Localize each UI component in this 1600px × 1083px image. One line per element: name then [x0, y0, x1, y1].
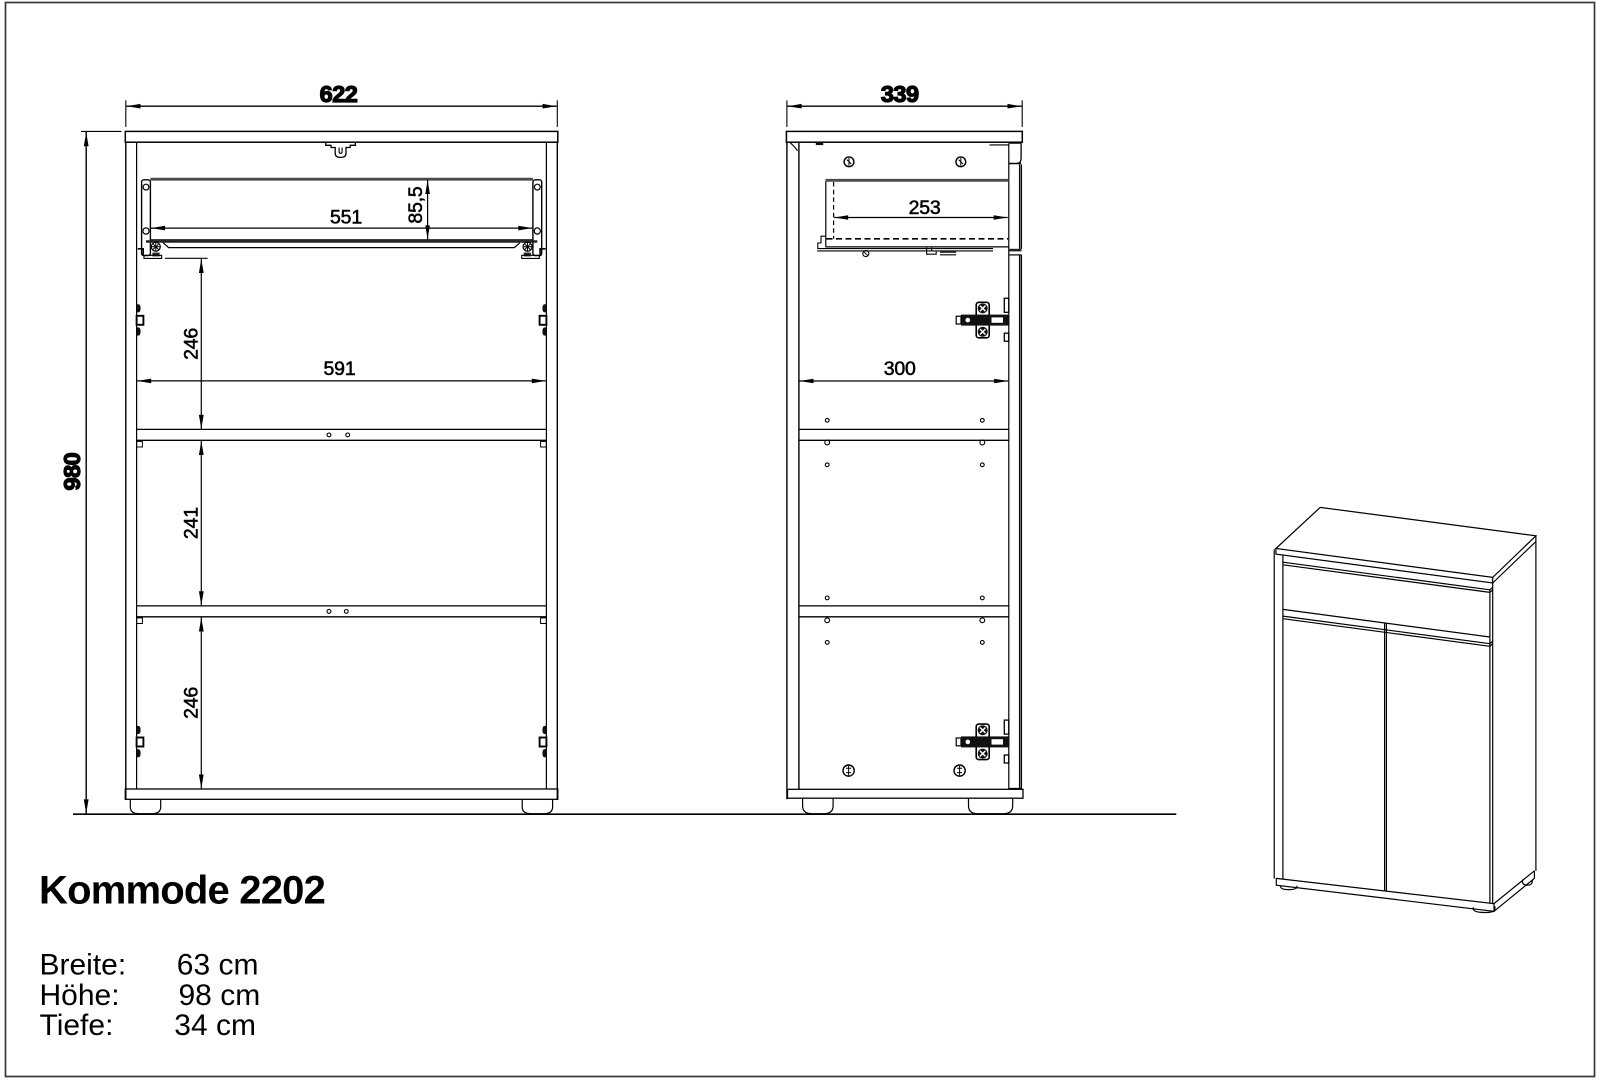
svg-text:Breite:: Breite:: [40, 949, 127, 982]
svg-text:Kommode 2202: Kommode 2202: [39, 869, 325, 913]
svg-text:34 cm: 34 cm: [174, 1009, 256, 1042]
svg-text:98 cm: 98 cm: [179, 979, 261, 1012]
svg-text:300: 300: [884, 358, 916, 380]
svg-text:241: 241: [181, 507, 203, 539]
svg-text:339: 339: [881, 81, 919, 107]
svg-text:Tiefe:: Tiefe:: [40, 1009, 114, 1042]
svg-text:551: 551: [330, 207, 362, 229]
svg-text:246: 246: [181, 687, 203, 719]
svg-text:63 cm: 63 cm: [177, 949, 259, 982]
svg-text:622: 622: [320, 81, 358, 107]
svg-text:Höhe:: Höhe:: [40, 979, 120, 1012]
svg-text:980: 980: [59, 452, 85, 490]
svg-text:253: 253: [909, 197, 941, 219]
svg-text:85,5: 85,5: [405, 186, 427, 224]
svg-text:591: 591: [324, 358, 356, 380]
svg-text:246: 246: [181, 328, 203, 360]
